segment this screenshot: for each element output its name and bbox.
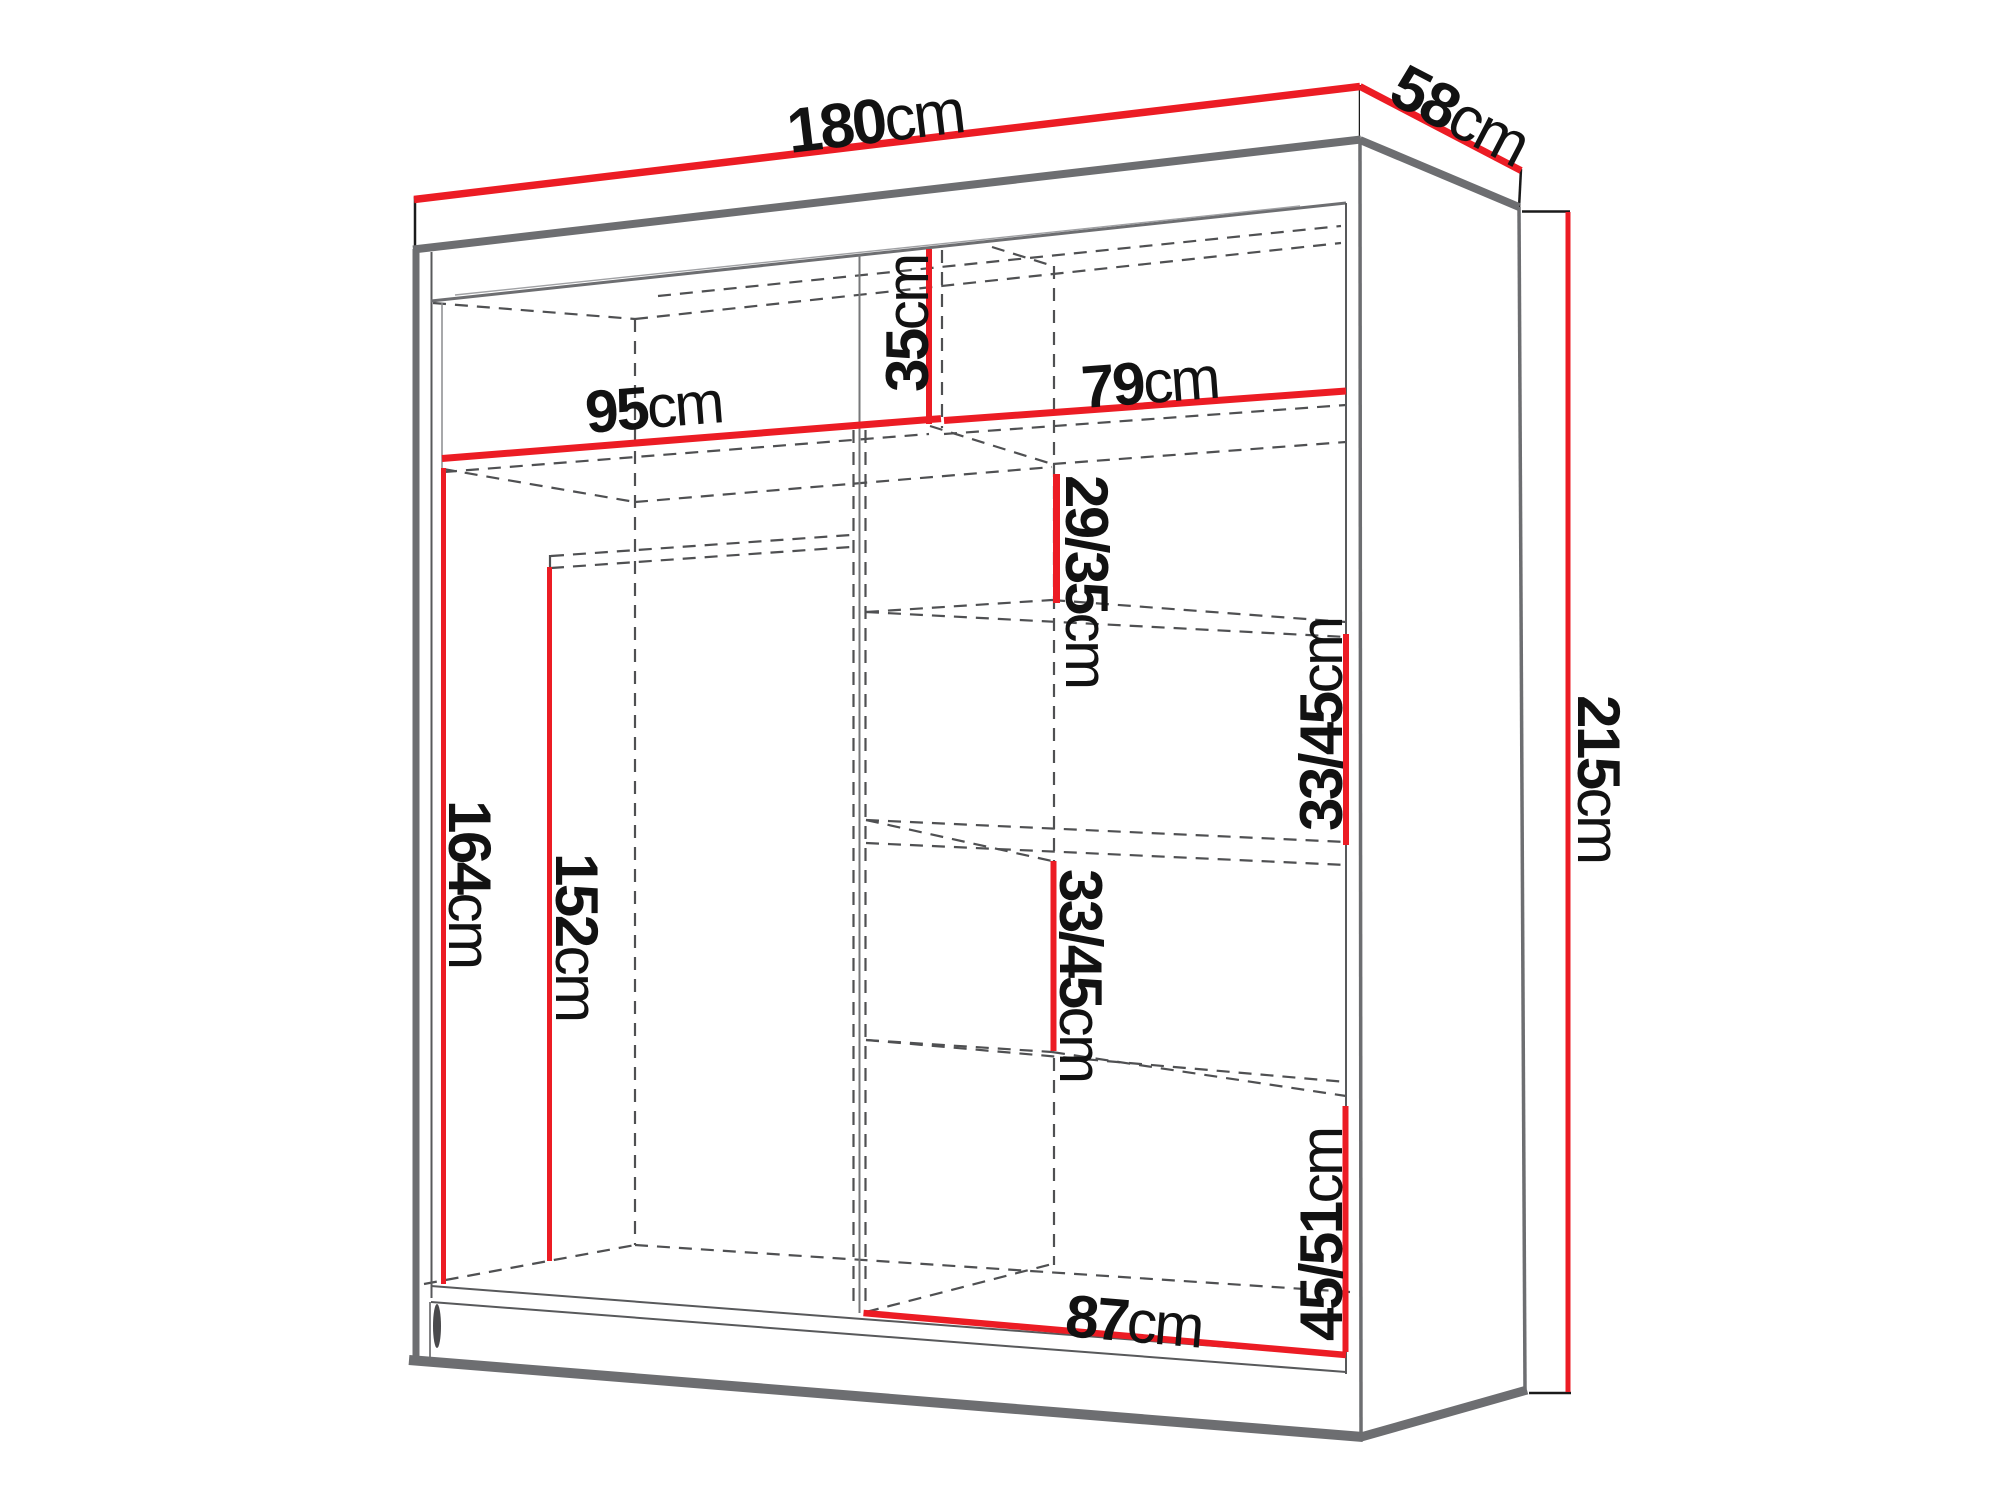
svg-text:79cm: 79cm <box>1079 344 1220 421</box>
svg-text:35cm: 35cm <box>874 255 941 392</box>
svg-text:87cm: 87cm <box>1063 1282 1205 1360</box>
svg-text:215cm: 215cm <box>1565 695 1632 863</box>
svg-text:33/45cm: 33/45cm <box>1047 869 1114 1082</box>
svg-text:95cm: 95cm <box>583 368 725 446</box>
svg-text:164cm: 164cm <box>436 800 503 968</box>
svg-text:29/35cm: 29/35cm <box>1053 475 1120 688</box>
svg-text:45/51cm: 45/51cm <box>1288 1128 1355 1341</box>
svg-text:33/45cm: 33/45cm <box>1288 618 1355 831</box>
svg-text:152cm: 152cm <box>543 853 610 1021</box>
